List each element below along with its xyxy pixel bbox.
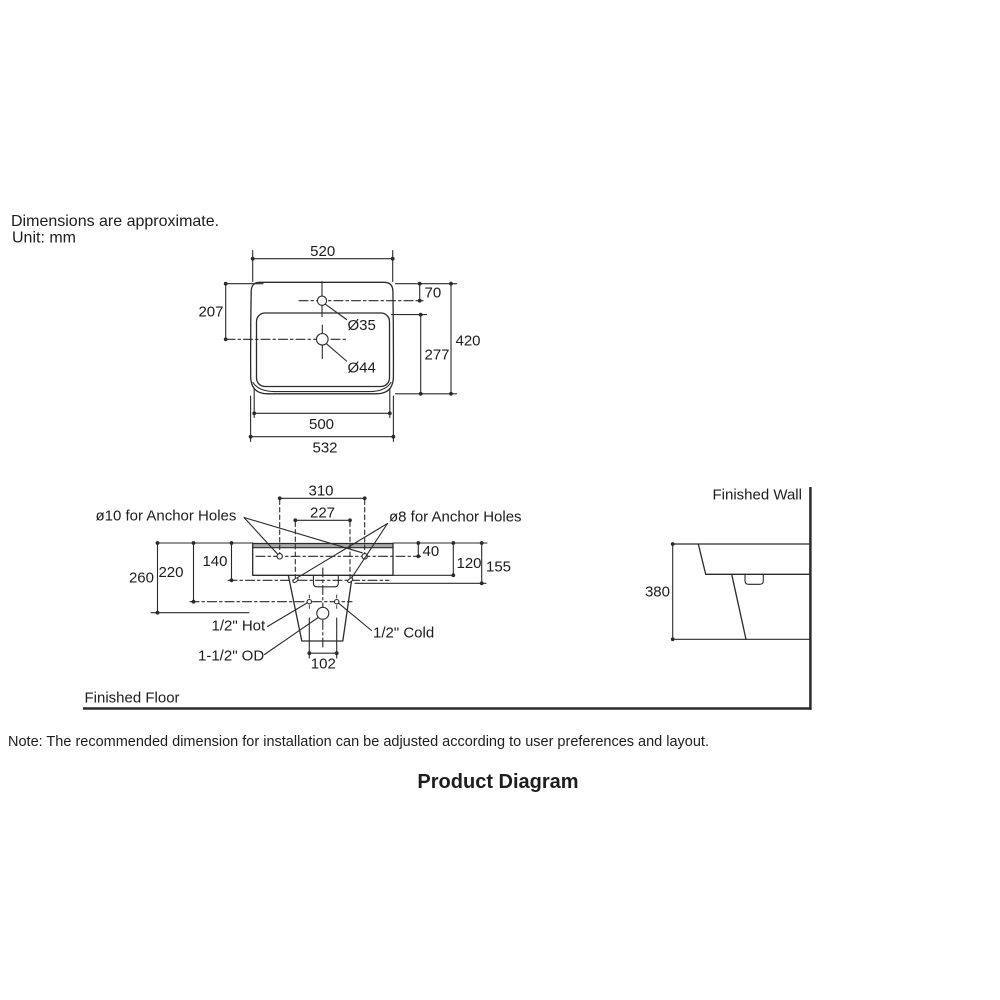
page-title: Product Diagram xyxy=(417,771,578,793)
hot-supply-hole xyxy=(307,600,311,604)
anchor-hole-10-left xyxy=(277,554,282,559)
dim-420-label: 420 xyxy=(456,333,481,350)
dim-520-label: 520 xyxy=(310,243,335,260)
dim-220: 220 xyxy=(158,541,195,604)
dim-120-label: 120 xyxy=(457,555,482,572)
note-text: Note: The recommended dimension for inst… xyxy=(8,734,709,750)
anchor-label-left: ø10 for Anchor Holes xyxy=(96,508,237,525)
dim-140: 140 xyxy=(202,541,233,582)
dim-102-label: 102 xyxy=(311,656,336,673)
dim-70: 70 xyxy=(396,282,457,303)
dim-380: 380 xyxy=(645,542,675,641)
dim-260-label: 260 xyxy=(129,570,154,587)
front-view-centerlines xyxy=(151,556,486,648)
dim-310-label: 310 xyxy=(308,483,333,500)
cold-callout: 1/2" Cold xyxy=(339,603,435,641)
side-view: Finished Wall 380 xyxy=(645,487,810,710)
dim-380-label: 380 xyxy=(645,584,670,601)
dim-102: 102 xyxy=(307,651,338,672)
dim-227-label: 227 xyxy=(310,505,335,522)
finished-floor-label: Finished Floor xyxy=(85,690,180,707)
anchor-hole-8-right xyxy=(347,577,354,583)
dim-40: 40 xyxy=(416,541,439,560)
dim-155-label: 155 xyxy=(486,559,511,576)
dim-drain-dia-label: Ø44 xyxy=(348,360,376,377)
header: Dimensions are approximate. Unit: mm xyxy=(11,213,219,247)
dim-155: 155 xyxy=(480,541,511,585)
drain-hole-leader xyxy=(327,344,347,361)
product-diagram-svg: Dimensions are approximate. Unit: mm Ø35… xyxy=(0,0,1000,1000)
anchor-hole-8-left xyxy=(292,577,299,583)
dim-120: 120 xyxy=(451,541,481,577)
dim-faucet-dia-label: Ø35 xyxy=(348,317,376,334)
dim-207: 207 xyxy=(198,282,263,341)
dim-277: 277 xyxy=(392,313,450,396)
dim-532-label: 532 xyxy=(312,440,337,457)
dim-277-label: 277 xyxy=(425,347,450,364)
header-line1: Dimensions are approximate. xyxy=(11,213,219,230)
footer: Note: The recommended dimension for inst… xyxy=(8,734,709,793)
dim-220-label: 220 xyxy=(158,564,183,581)
finished-wall-label: Finished Wall xyxy=(713,487,802,504)
dim-40-label: 40 xyxy=(423,543,440,560)
anchor-label-right: ø8 for Anchor Holes xyxy=(389,509,522,526)
hot-label: 1/2" Hot xyxy=(212,618,267,635)
dim-140-label: 140 xyxy=(202,553,227,570)
dim-500: 500 xyxy=(252,389,391,434)
front-view: 310 227 ø10 for Anchor Holes ø8 for Anch… xyxy=(83,483,812,709)
dim-500-label: 500 xyxy=(309,416,334,433)
header-line2: Unit: mm xyxy=(12,230,76,247)
product-diagram-page: Dimensions are approximate. Unit: mm Ø35… xyxy=(0,0,1000,1000)
dim-260: 260 xyxy=(129,541,159,615)
faucet-hole-leader xyxy=(325,304,346,319)
hot-callout: 1/2" Hot xyxy=(212,603,308,635)
dim-207-label: 207 xyxy=(198,304,223,321)
cold-label: 1/2" Cold xyxy=(373,625,434,642)
dim-70-label: 70 xyxy=(425,285,442,302)
top-view: Ø35 Ø44 520 70 207 277 xyxy=(198,243,480,457)
dim-520: 520 xyxy=(251,243,395,282)
od-label: 1-1/2" OD xyxy=(198,648,264,665)
side-view-basin-profile xyxy=(673,544,811,639)
